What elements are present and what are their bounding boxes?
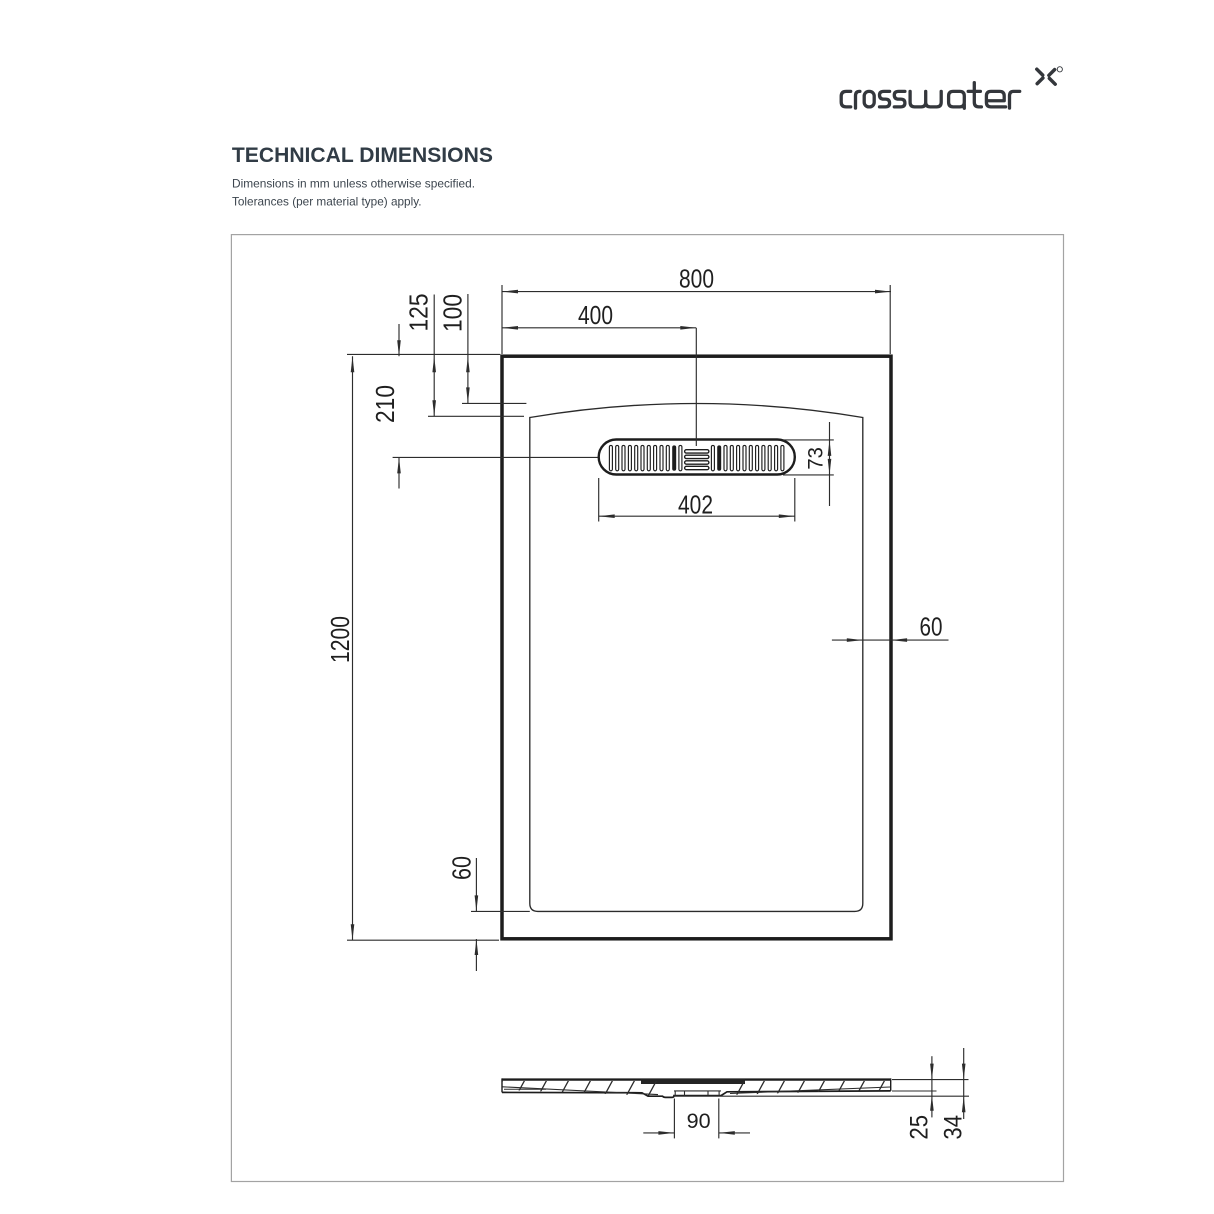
svg-text:210: 210 [370,385,400,423]
svg-text:Dimensions in mm unless otherw: Dimensions in mm unless otherwise specif… [232,177,475,191]
svg-text:100: 100 [438,294,468,332]
svg-text:400: 400 [578,300,613,330]
svg-text:1200: 1200 [325,616,355,663]
svg-text:402: 402 [678,490,713,520]
svg-text:34: 34 [940,1115,968,1140]
svg-text:73: 73 [804,447,828,470]
svg-text:90: 90 [687,1109,711,1133]
svg-text:TECHNICAL DIMENSIONS: TECHNICAL DIMENSIONS [232,144,493,167]
svg-text:25: 25 [905,1115,933,1140]
svg-text:60: 60 [446,856,476,880]
svg-text:125: 125 [404,294,434,332]
svg-text:800: 800 [679,264,714,294]
svg-text:60: 60 [920,611,943,641]
svg-text:Tolerances (per material type): Tolerances (per material type) apply. [232,195,422,209]
